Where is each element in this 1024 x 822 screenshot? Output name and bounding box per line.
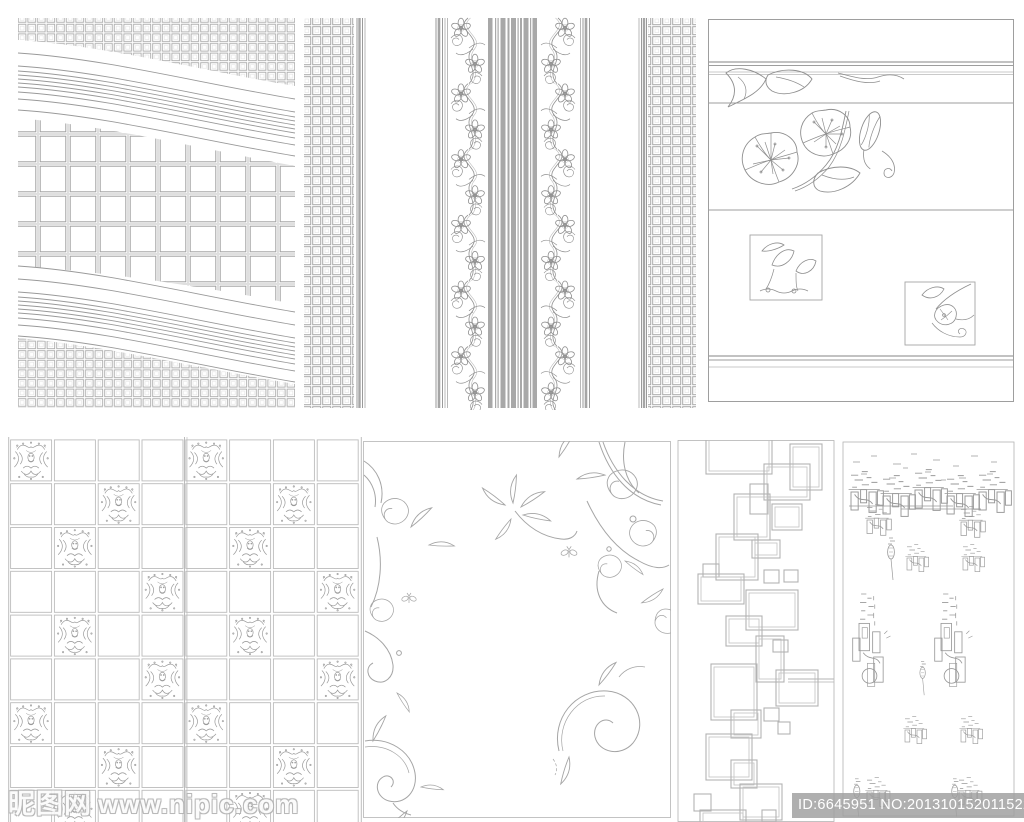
tile-cell	[273, 528, 314, 569]
center-bar-group	[488, 18, 537, 408]
rect-cascade-group	[694, 440, 822, 822]
tile-cell	[98, 571, 139, 612]
cascade-rect	[776, 670, 818, 706]
cascade-rect	[764, 464, 810, 500]
floral-stripe-graphic	[302, 16, 698, 410]
damask-motif	[14, 705, 49, 743]
tile-cell	[186, 484, 227, 525]
tile-cell	[317, 703, 358, 744]
swirl-flourish-graphic	[363, 441, 671, 818]
tile-cell	[54, 571, 95, 612]
tile-cell	[230, 659, 271, 700]
blossom-band	[726, 69, 904, 192]
tile-cell	[98, 528, 139, 569]
panel-flower-border	[708, 19, 1014, 402]
cascade-rect	[756, 636, 784, 682]
wave-grid-graphic	[8, 14, 296, 410]
stripe-group-left-outer	[357, 18, 365, 408]
horizontal-rule-group	[709, 62, 1013, 367]
cascade-rect	[734, 494, 770, 540]
vine-column-left	[451, 18, 485, 410]
tile-cell	[142, 615, 183, 656]
image-id-bar: ID:6645951 NO:20131015201152238000	[792, 793, 1024, 818]
sketch-cluster	[961, 544, 984, 571]
sketch-cluster	[903, 716, 926, 743]
tile-cell	[317, 440, 358, 481]
tile-cell	[273, 440, 314, 481]
tile-cell	[98, 440, 139, 481]
nipic-url-text: www.nipic.com	[98, 789, 299, 819]
tile-cell	[54, 703, 95, 744]
sketch-cluster	[959, 716, 982, 743]
damask-motif	[101, 486, 136, 524]
cascade-rect	[694, 794, 711, 811]
cascade-rect-inner	[743, 787, 779, 817]
cascade-rect	[750, 484, 768, 514]
sketch-cluster	[888, 538, 895, 580]
tile-cell	[273, 571, 314, 612]
stripe-group-right-inner	[581, 18, 590, 408]
cascade-rect	[773, 640, 788, 652]
tile-cell	[317, 747, 358, 788]
mesh-strip-left	[304, 18, 354, 408]
tile-cell	[142, 484, 183, 525]
stripe-group-right-outer	[639, 18, 647, 408]
tile-cell	[317, 790, 358, 822]
pattern-sheet: 昵图网www.nipic.com ID:6645951 NO:201310152…	[0, 0, 1024, 822]
framed-sketch-left	[750, 235, 822, 300]
cascade-rect-inner	[734, 713, 758, 735]
tile-cell	[98, 615, 139, 656]
cascade-rect	[746, 590, 798, 630]
damask-motif	[57, 617, 92, 655]
damask-motif	[320, 573, 355, 611]
cascade-rect	[711, 664, 757, 720]
big-grid-middle	[18, 118, 295, 304]
cascade-rect-inner	[737, 497, 767, 537]
damask-motif	[145, 661, 180, 699]
sketch-cluster	[935, 594, 973, 686]
panel-wave-grid	[8, 14, 296, 410]
damask-motif	[101, 749, 136, 787]
cascade-rect-inner	[709, 440, 769, 471]
flower-border-graphic	[708, 19, 1014, 402]
flourish-top-right	[553, 441, 671, 639]
nipic-logo-text: 昵图网	[8, 789, 92, 819]
tile-cell	[230, 440, 271, 481]
tile-cell	[317, 528, 358, 569]
cascade-rect-inner	[775, 507, 799, 527]
mesh-strip-right	[648, 18, 696, 408]
sketch-cluster	[853, 594, 891, 686]
cascade-rect-inner	[703, 813, 743, 822]
tile-cell	[11, 528, 52, 569]
damask-motif	[189, 705, 224, 743]
tile-cell	[11, 484, 52, 525]
tile-cell	[54, 484, 95, 525]
tile-cell	[317, 615, 358, 656]
cascade-rect	[703, 564, 719, 577]
cascade-rect	[764, 570, 779, 583]
damask-motif	[57, 530, 92, 568]
panel-swirl-flourish	[363, 441, 671, 818]
rect-cascade-graphic	[676, 440, 836, 822]
cascade-rect	[772, 504, 802, 530]
cascade-rect-inner	[701, 577, 741, 601]
damask-motif	[276, 486, 311, 524]
panel-frame	[709, 20, 1014, 402]
tile-cell	[11, 571, 52, 612]
tile-cell	[186, 659, 227, 700]
cascade-rect	[784, 570, 798, 582]
nipic-watermark: 昵图网www.nipic.com	[8, 782, 299, 821]
cascade-rect-inner	[767, 467, 807, 497]
tile-cell	[11, 615, 52, 656]
side-connector-lines	[788, 679, 834, 682]
tile-cell	[273, 703, 314, 744]
damask-checker-graphic	[8, 437, 362, 822]
cascade-rect	[778, 722, 790, 734]
flourish-top-center	[482, 475, 578, 558]
tile-cell	[230, 484, 271, 525]
tile-cell	[273, 659, 314, 700]
tile-cell	[186, 571, 227, 612]
tile-cell	[230, 703, 271, 744]
tile-cell	[186, 528, 227, 569]
sketch-cluster	[905, 544, 928, 571]
cascade-rect-inner	[719, 537, 755, 577]
sketch-cluster	[977, 472, 1012, 513]
damask-motif	[233, 530, 268, 568]
damask-motif	[14, 442, 49, 480]
sketch-cluster	[945, 476, 980, 517]
tile-cell	[11, 659, 52, 700]
vine-column-right	[541, 18, 575, 410]
cascade-rect-inner	[709, 737, 749, 777]
sketch-figures-graphic	[841, 440, 1016, 818]
cascade-rect	[726, 616, 762, 646]
cascade-rect-inner	[734, 763, 754, 785]
small-grid-bottom	[18, 338, 295, 408]
damask-motif	[320, 661, 355, 699]
damask-motif	[189, 442, 224, 480]
tile-cell	[317, 484, 358, 525]
cascade-rect-inner	[749, 593, 795, 627]
sketch-cluster	[913, 470, 948, 511]
cascade-rect-inner	[729, 619, 759, 643]
tile-cell	[142, 528, 183, 569]
panel-frame	[678, 441, 834, 822]
panel-rect-cascade	[676, 440, 836, 822]
cascade-rect	[698, 574, 744, 604]
flourish-bottom-right	[552, 662, 645, 784]
sketch-cluster	[881, 476, 916, 517]
tile-cell	[98, 703, 139, 744]
tile-cell	[54, 659, 95, 700]
flourish-left-edge	[364, 461, 454, 713]
damask-motif	[276, 749, 311, 787]
tile-cell	[98, 659, 139, 700]
cascade-rect	[764, 708, 779, 721]
cascade-rect	[706, 734, 752, 780]
panel-damask-checker	[8, 437, 362, 822]
flourish-bottom-left	[365, 716, 444, 818]
stripe-group-left-inner	[436, 18, 448, 408]
tile-cell	[142, 703, 183, 744]
damask-motif	[145, 573, 180, 611]
tile-cell	[230, 571, 271, 612]
panel-frame	[364, 442, 671, 818]
panel-sketch-figures	[841, 440, 1016, 818]
tile-cell	[142, 440, 183, 481]
damask-motif	[233, 617, 268, 655]
tile-cell	[273, 615, 314, 656]
small-grid-top	[18, 18, 295, 86]
image-id-text: ID:6645951 NO:20131015201152238000	[798, 797, 1024, 813]
tile-cell	[54, 440, 95, 481]
framed-sketch-right	[905, 282, 975, 345]
sketch-cluster	[920, 662, 926, 696]
cascade-rect	[700, 810, 746, 822]
panel-floral-stripe	[302, 16, 698, 410]
cascade-rect	[706, 440, 772, 474]
tile-cell	[186, 615, 227, 656]
